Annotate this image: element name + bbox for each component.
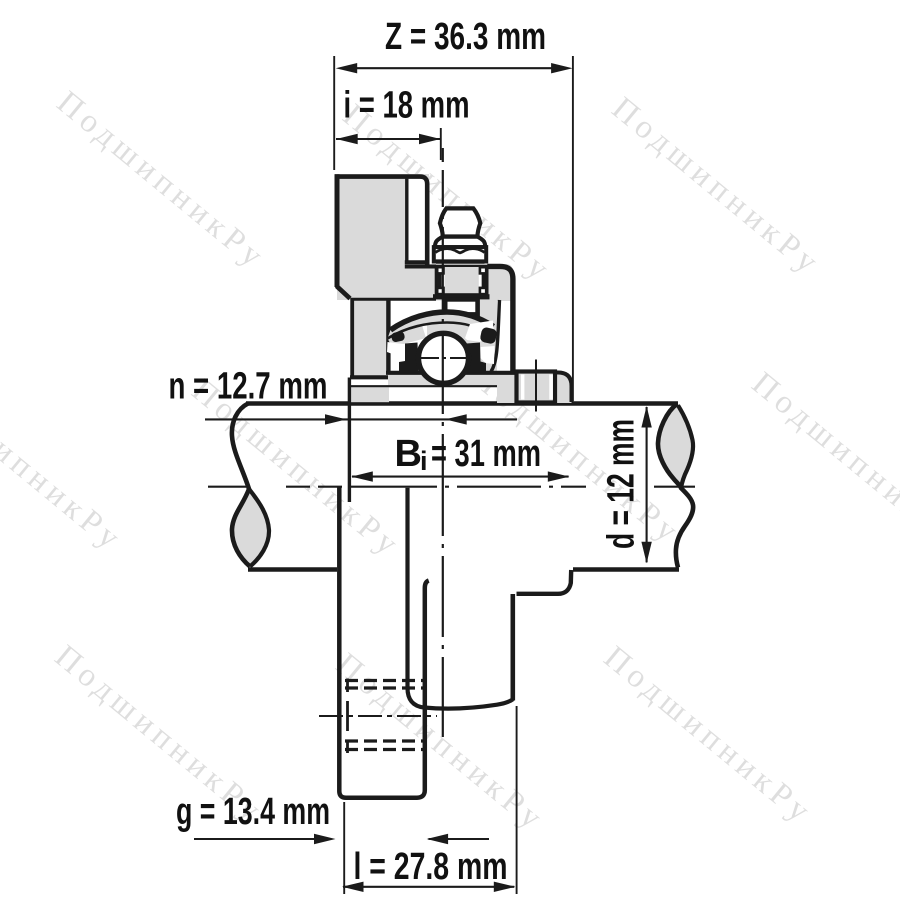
svg-text:ПодшипникРу: ПодшипникРу [329,646,552,839]
svg-text:ПодшипникРу: ПодшипникРу [605,90,828,283]
svg-text:i: i [420,446,428,476]
svg-text:Z = 36.3 mm: Z = 36.3 mm [385,16,546,58]
svg-text:= 31 mm: = 31 mm [431,433,541,475]
svg-text:d = 12 mm: d = 12 mm [601,419,643,549]
svg-text:n = 12.7 mm: n = 12.7 mm [169,365,328,407]
svg-text:i = 18 mm: i = 18 mm [344,85,470,127]
svg-text:ПодшипникРу: ПодшипникРу [597,639,820,832]
svg-text:g = 13.4 mm: g = 13.4 mm [176,791,330,833]
svg-text:ПодшипникРу: ПодшипникРу [745,365,900,558]
svg-text:l = 27.8 mm: l = 27.8 mm [354,846,508,888]
svg-text:B: B [395,433,422,475]
svg-text:ПодшипникРу: ПодшипникРу [0,366,130,559]
svg-text:ПодшипникРу: ПодшипникРу [50,84,273,277]
